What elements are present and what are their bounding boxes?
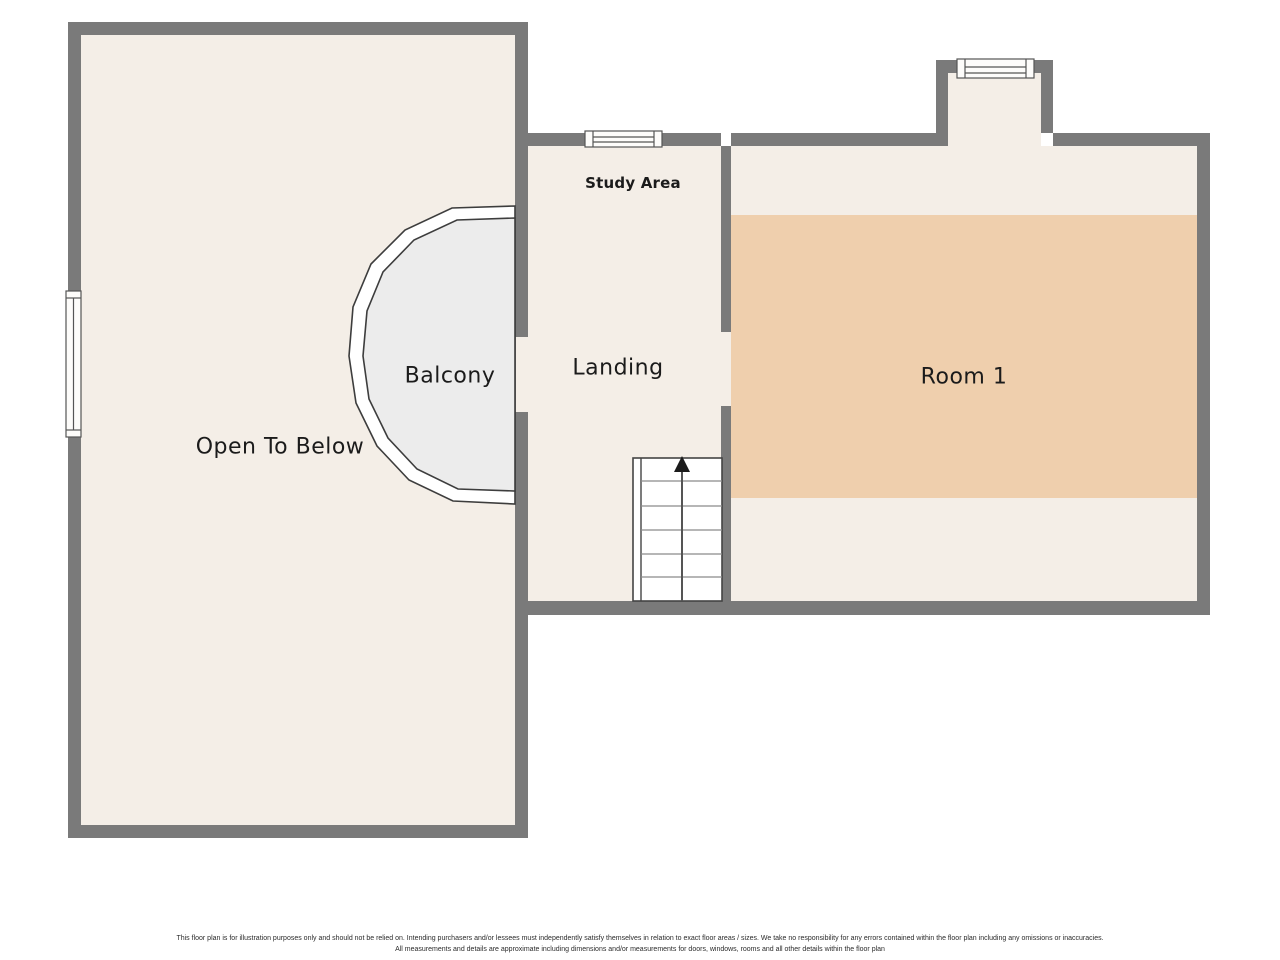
wall-room1-top-left	[731, 133, 936, 146]
disclaimer-line1: This floor plan is for illustration purp…	[0, 934, 1280, 945]
staircase	[633, 456, 722, 601]
window-study-top	[585, 131, 662, 147]
window-bay-top	[957, 59, 1034, 78]
room1-label: Room 1	[921, 365, 1008, 390]
wall-left-room-top	[68, 22, 528, 35]
open-to-below-label: Open To Below	[196, 435, 365, 460]
wall-room1-right	[1197, 133, 1210, 615]
landing-label: Landing	[572, 356, 663, 381]
study-area-label: Study Area	[585, 174, 681, 192]
door-opening-room1	[721, 332, 731, 406]
floor-bay	[948, 73, 1041, 163]
wall-left-room-right-upper	[515, 22, 528, 337]
door-opening-balcony	[515, 337, 528, 412]
wall-left-room-right-lower	[515, 412, 528, 838]
wall-landing-room1-upper	[721, 146, 731, 332]
disclaimer: This floor plan is for illustration purp…	[0, 934, 1280, 955]
window-left-wall	[66, 291, 81, 437]
wall-section-bottom	[515, 601, 1210, 615]
room1-accent-area	[731, 215, 1197, 498]
floor-plan-page: Open To Below Balcony Study Area Landing…	[0, 0, 1280, 960]
floor-plan-drawing	[0, 0, 1280, 960]
wall-room1-top-right	[1053, 133, 1210, 146]
wall-bay-right	[1041, 60, 1053, 133]
balcony-label: Balcony	[405, 364, 496, 389]
disclaimer-line2: All measurements and details are approxi…	[0, 945, 1280, 956]
wall-left-room-bottom	[68, 825, 528, 838]
